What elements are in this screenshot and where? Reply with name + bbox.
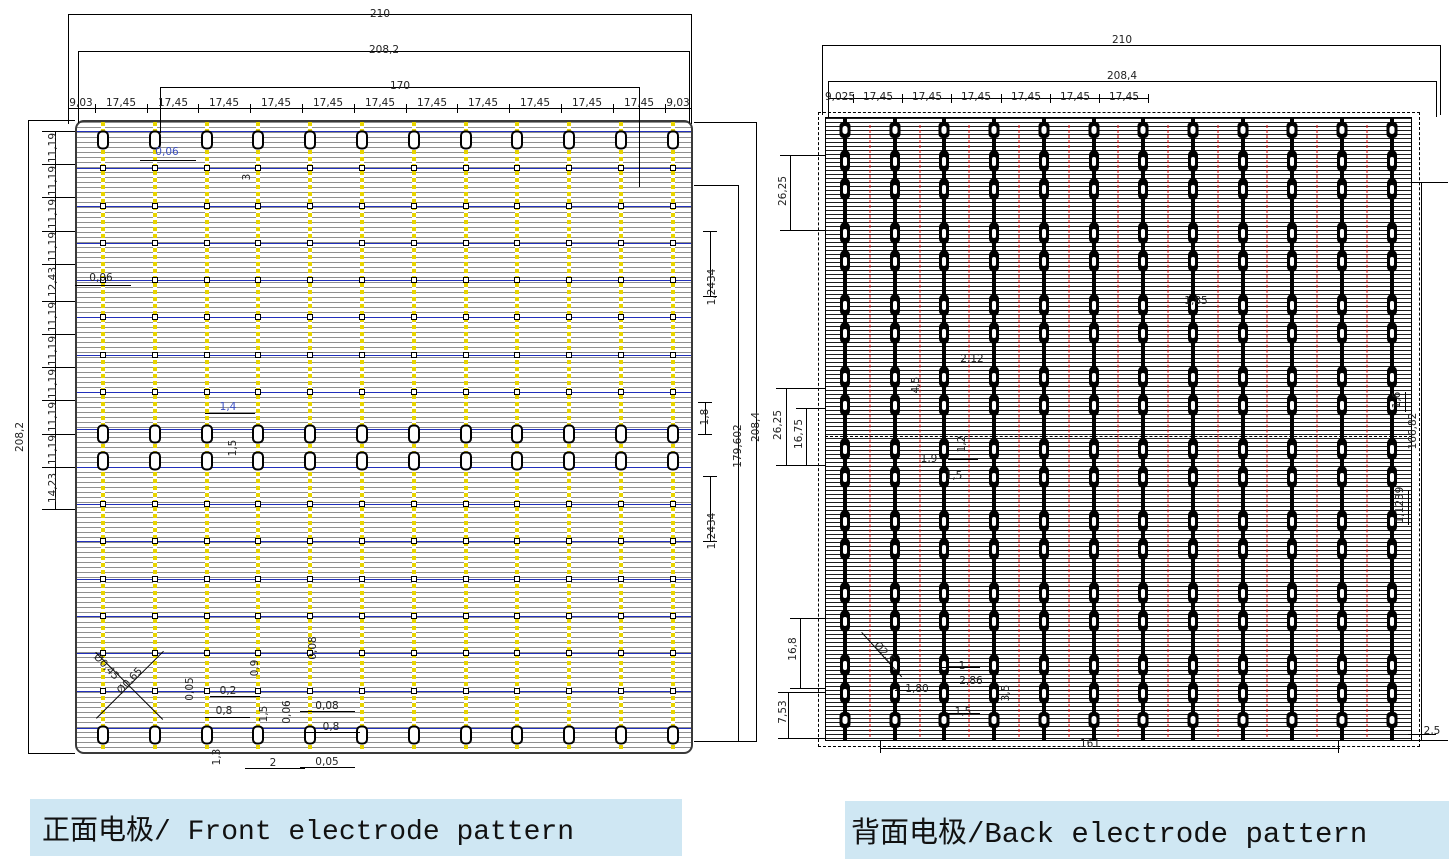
dim-label: 11,19 bbox=[48, 166, 59, 196]
dim-line bbox=[42, 264, 75, 265]
dim-label: 26,25 bbox=[773, 410, 784, 440]
dim-line bbox=[205, 413, 255, 414]
solder-pad bbox=[359, 538, 365, 544]
dim-line bbox=[406, 104, 407, 113]
front-bottom-pad bbox=[149, 726, 161, 745]
solder-pad bbox=[514, 538, 520, 544]
solder-pad bbox=[411, 650, 417, 656]
interconnect-line bbox=[77, 728, 691, 729]
solder-pad bbox=[255, 613, 261, 619]
dim-line bbox=[691, 104, 692, 113]
solder-pad bbox=[514, 352, 520, 358]
front-top-pad bbox=[97, 131, 109, 150]
solder-pad bbox=[670, 277, 676, 283]
back-pad-blob bbox=[1039, 582, 1049, 604]
solder-pad bbox=[359, 314, 365, 320]
solder-pad bbox=[100, 203, 106, 209]
dim-label: 11,19 bbox=[48, 369, 59, 399]
back-pad-blob bbox=[1138, 222, 1148, 244]
solder-pad bbox=[100, 165, 106, 171]
dim-label: 166,82 bbox=[1408, 413, 1419, 450]
dim-line bbox=[790, 688, 825, 689]
back-pad-blob bbox=[1188, 582, 1198, 604]
back-pad-blob bbox=[989, 682, 999, 704]
solder-pad bbox=[618, 613, 624, 619]
back-pad-blob bbox=[1287, 322, 1297, 344]
solder-pad bbox=[566, 538, 572, 544]
back-pad-blob bbox=[1188, 438, 1198, 460]
dim-label: 170 bbox=[390, 81, 410, 92]
front-bottom-pad bbox=[511, 726, 523, 745]
dim-label: 0,06 bbox=[89, 273, 112, 284]
solder-pad bbox=[204, 389, 210, 395]
back-busbar bbox=[1191, 118, 1195, 740]
back-pad-blob bbox=[1238, 150, 1248, 172]
dim-line bbox=[778, 738, 825, 739]
dim-label: 11,19 bbox=[48, 435, 59, 465]
front-top-pad bbox=[304, 131, 316, 150]
center-line-red bbox=[870, 125, 871, 737]
back-pad-blob bbox=[840, 250, 850, 272]
solder-pad bbox=[359, 277, 365, 283]
dim-label: 208,4 bbox=[751, 412, 762, 442]
dim-line bbox=[147, 104, 148, 113]
back-pad-blob bbox=[1337, 582, 1347, 604]
back-busbar bbox=[1241, 118, 1245, 740]
back-pad-blob bbox=[1287, 366, 1297, 388]
front-bottom-pad bbox=[304, 726, 316, 745]
solder-pad bbox=[618, 501, 624, 507]
solder-pad bbox=[255, 538, 261, 544]
solder-pad bbox=[152, 314, 158, 320]
dim-label: 17,45 bbox=[106, 98, 136, 109]
dim-line bbox=[951, 94, 952, 103]
back-pad-blob bbox=[840, 610, 850, 632]
solder-pad bbox=[100, 576, 106, 582]
back-busbar bbox=[1092, 118, 1096, 740]
solder-pad bbox=[411, 538, 417, 544]
back-pad-blob bbox=[1039, 178, 1049, 200]
solder-pad bbox=[255, 165, 261, 171]
dim-label: 2,5 bbox=[1424, 726, 1441, 737]
solder-pad bbox=[514, 314, 520, 320]
back-pad-blob bbox=[1089, 682, 1099, 704]
back-pad-blob bbox=[1238, 250, 1248, 272]
solder-pad bbox=[670, 613, 676, 619]
solder-pad bbox=[255, 277, 261, 283]
back-pad-blob bbox=[890, 610, 900, 632]
front-mid-pad bbox=[563, 452, 575, 471]
back-busbar bbox=[843, 118, 847, 740]
solder-pad bbox=[463, 352, 469, 358]
solder-pad bbox=[463, 576, 469, 582]
solder-pad bbox=[411, 613, 417, 619]
front-mid-pad bbox=[97, 425, 109, 444]
solder-pad bbox=[359, 240, 365, 246]
solder-pad bbox=[359, 650, 365, 656]
dim-label: 2,86 bbox=[959, 676, 982, 687]
solder-pad bbox=[411, 165, 417, 171]
solder-pad bbox=[566, 576, 572, 582]
front-caption: 正面电极/ Front electrode pattern bbox=[30, 799, 682, 856]
solder-pad bbox=[463, 613, 469, 619]
front-mid-pad bbox=[460, 452, 472, 471]
dim-label: 17,45 bbox=[417, 98, 447, 109]
front-mid-pad bbox=[356, 425, 368, 444]
solder-pad bbox=[152, 688, 158, 694]
dim-label: 11,19 bbox=[48, 199, 59, 229]
front-top-pad bbox=[408, 131, 420, 150]
solder-pad bbox=[307, 389, 313, 395]
back-bottom-pad bbox=[1287, 712, 1298, 728]
dim-line bbox=[42, 197, 75, 198]
back-pad-blob bbox=[1387, 466, 1397, 488]
solder-pad bbox=[566, 165, 572, 171]
solder-pad bbox=[307, 165, 313, 171]
solder-pad bbox=[152, 501, 158, 507]
back-bottom-pad bbox=[1238, 712, 1249, 728]
solder-pad bbox=[204, 650, 210, 656]
solder-pad bbox=[152, 240, 158, 246]
back-pad-blob bbox=[1188, 394, 1198, 416]
solder-pad bbox=[514, 650, 520, 656]
solder-pad bbox=[566, 277, 572, 283]
back-pad-blob bbox=[890, 366, 900, 388]
back-busbar bbox=[992, 118, 996, 740]
back-pad-blob bbox=[989, 438, 999, 460]
front-mid-pad bbox=[356, 452, 368, 471]
dim-label: 12,43 bbox=[48, 267, 59, 297]
dim-label: 1,2 bbox=[957, 436, 968, 453]
dim-label: 9,03 bbox=[69, 98, 92, 109]
back-pad-blob bbox=[1138, 150, 1148, 172]
back-pad-blob bbox=[1387, 294, 1397, 316]
dim-label: 1,9 bbox=[921, 454, 938, 465]
back-pad-blob bbox=[1287, 582, 1297, 604]
back-pad-blob bbox=[1138, 394, 1148, 416]
interconnect-line bbox=[77, 243, 691, 244]
dim-label: 17,45 bbox=[365, 98, 395, 109]
solder-pad bbox=[514, 613, 520, 619]
back-pad-blob bbox=[1039, 322, 1049, 344]
solder-pad bbox=[307, 352, 313, 358]
front-top-pad bbox=[252, 131, 264, 150]
interconnect-line bbox=[77, 541, 691, 542]
solder-pad bbox=[566, 650, 572, 656]
solder-pad bbox=[255, 240, 261, 246]
solder-pad bbox=[670, 538, 676, 544]
back-pad-blob bbox=[1387, 654, 1397, 676]
solder-pad bbox=[100, 389, 106, 395]
back-pad-blob bbox=[989, 322, 999, 344]
dim-label: 208,2 bbox=[369, 45, 399, 56]
solder-pad bbox=[359, 688, 365, 694]
interconnect-line bbox=[77, 504, 691, 505]
back-pad-blob bbox=[939, 654, 949, 676]
dim-label: 17,45 bbox=[1109, 92, 1139, 103]
back-pad-blob bbox=[890, 682, 900, 704]
solder-pad bbox=[255, 650, 261, 656]
back-pad-blob bbox=[890, 250, 900, 272]
back-pad-blob bbox=[840, 178, 850, 200]
back-bottom-pad bbox=[1387, 712, 1398, 728]
solder-pad bbox=[463, 389, 469, 395]
front-mid-pad bbox=[615, 425, 627, 444]
dim-line bbox=[790, 155, 791, 230]
back-pad-blob bbox=[989, 582, 999, 604]
dim-label: 0,9 bbox=[250, 660, 261, 677]
dim-line bbox=[42, 334, 75, 335]
solder-pad bbox=[463, 314, 469, 320]
solder-pad bbox=[566, 389, 572, 395]
front-top-pad bbox=[460, 131, 472, 150]
dim-label: 0,05 bbox=[315, 757, 338, 768]
back-pad-blob bbox=[939, 510, 949, 532]
back-pad-blob bbox=[1287, 294, 1297, 316]
solder-pad bbox=[100, 688, 106, 694]
back-pad-blob bbox=[1188, 366, 1198, 388]
back-pad-blob bbox=[1238, 510, 1248, 532]
center-line-red bbox=[1019, 125, 1020, 737]
back-bottom-pad bbox=[1089, 712, 1100, 728]
back-pad-blob bbox=[840, 222, 850, 244]
dim-label: 14,23 bbox=[48, 473, 59, 503]
solder-pad bbox=[670, 314, 676, 320]
center-line-red bbox=[1118, 125, 1119, 737]
back-pad-blob bbox=[1337, 438, 1347, 460]
back-busbar bbox=[1042, 118, 1046, 740]
front-mid-pad bbox=[149, 425, 161, 444]
back-bottom-pad bbox=[1039, 712, 1050, 728]
solder-pad bbox=[204, 538, 210, 544]
front-mid-pad bbox=[304, 452, 316, 471]
solder-pad bbox=[463, 240, 469, 246]
back-bottom-pad bbox=[890, 712, 901, 728]
back-pad-blob bbox=[840, 654, 850, 676]
front-mid-pad bbox=[511, 425, 523, 444]
dim-label: 9,025 bbox=[825, 92, 855, 103]
solder-pad bbox=[204, 352, 210, 358]
dim-line bbox=[42, 400, 75, 401]
solder-pad bbox=[152, 277, 158, 283]
dim-label: 179,602 bbox=[733, 424, 744, 467]
back-pad-blob bbox=[1039, 294, 1049, 316]
back-pad-blob bbox=[1238, 178, 1248, 200]
front-bottom-pad bbox=[615, 726, 627, 745]
dim-line bbox=[140, 160, 196, 161]
back-pad-blob bbox=[939, 438, 949, 460]
back-pad-blob bbox=[840, 538, 850, 560]
solder-pad bbox=[411, 576, 417, 582]
solder-pad bbox=[411, 501, 417, 507]
back-pad-blob bbox=[1287, 178, 1297, 200]
dim-label: 11,19 bbox=[48, 302, 59, 332]
solder-pad bbox=[566, 314, 572, 320]
front-bottom-pad bbox=[252, 726, 264, 745]
back-pad-blob bbox=[989, 654, 999, 676]
back-pad-blob bbox=[890, 510, 900, 532]
dim-label: 3,5 bbox=[1001, 685, 1012, 702]
dim-line bbox=[42, 164, 75, 165]
back-pad-blob bbox=[1287, 250, 1297, 272]
solder-pad bbox=[670, 389, 676, 395]
solder-pad bbox=[670, 165, 676, 171]
back-pad-blob bbox=[1337, 178, 1347, 200]
dim-label: 208,2 bbox=[15, 422, 26, 452]
dim-label: 2,12 bbox=[960, 354, 983, 365]
dim-line bbox=[776, 388, 825, 389]
solder-pad bbox=[514, 165, 520, 171]
back-busbar bbox=[1290, 118, 1294, 740]
solder-pad bbox=[514, 203, 520, 209]
dim-line bbox=[1421, 182, 1422, 740]
back-pad-blob bbox=[1387, 178, 1397, 200]
solder-pad bbox=[100, 352, 106, 358]
front-mid-pad bbox=[615, 452, 627, 471]
front-top-pad bbox=[356, 131, 368, 150]
back-top-pad bbox=[1089, 122, 1100, 138]
back-caption-text: 背面电极/Back electrode pattern bbox=[851, 809, 1367, 851]
back-pad-blob bbox=[1188, 610, 1198, 632]
back-pad-blob bbox=[1138, 178, 1148, 200]
back-pad-blob bbox=[1089, 610, 1099, 632]
back-pad-blob bbox=[1387, 150, 1397, 172]
dim-label: 210 bbox=[370, 9, 390, 20]
back-pad-blob bbox=[1138, 510, 1148, 532]
solder-pad bbox=[204, 314, 210, 320]
solder-pad bbox=[204, 576, 210, 582]
solder-pad bbox=[152, 203, 158, 209]
back-pad-blob bbox=[989, 222, 999, 244]
back-pad-blob bbox=[1238, 322, 1248, 344]
dim-label: 17,45 bbox=[468, 98, 498, 109]
solder-pad bbox=[670, 352, 676, 358]
front-mid-pad bbox=[201, 425, 213, 444]
front-mid-pad bbox=[667, 452, 679, 471]
back-pad-blob bbox=[1039, 682, 1049, 704]
front-mid-pad bbox=[252, 452, 264, 471]
solder-pad bbox=[152, 165, 158, 171]
back-pad-blob bbox=[939, 610, 949, 632]
back-pad-blob bbox=[1287, 654, 1297, 676]
center-line-red bbox=[1218, 125, 1219, 737]
back-pad-blob bbox=[989, 178, 999, 200]
dim-line bbox=[28, 753, 75, 754]
dim-label: 0,2 bbox=[220, 686, 237, 697]
back-pad-blob bbox=[1138, 366, 1148, 388]
front-top-pad bbox=[201, 131, 213, 150]
dim-line bbox=[457, 104, 458, 113]
solder-pad bbox=[463, 501, 469, 507]
solder-pad bbox=[255, 501, 261, 507]
solder-pad bbox=[618, 203, 624, 209]
solder-pad bbox=[566, 203, 572, 209]
dim-label: 16,75 bbox=[794, 419, 805, 449]
back-top-pad bbox=[1138, 122, 1149, 138]
solder-pad bbox=[618, 576, 624, 582]
dim-label: 1 bbox=[959, 661, 966, 672]
back-pad-blob bbox=[1138, 610, 1148, 632]
front-mid-pad bbox=[149, 452, 161, 471]
solder-pad bbox=[359, 501, 365, 507]
back-pad-blob bbox=[840, 322, 850, 344]
solder-pad bbox=[618, 389, 624, 395]
dim-line bbox=[780, 230, 825, 231]
dim-line bbox=[806, 408, 807, 465]
solder-pad bbox=[618, 352, 624, 358]
interconnect-line bbox=[77, 467, 691, 468]
back-pad-blob bbox=[1089, 394, 1099, 416]
back-top-pad bbox=[939, 122, 950, 138]
front-bottom-pad bbox=[460, 726, 472, 745]
back-pad-blob bbox=[1337, 150, 1347, 172]
front-bottom-pad bbox=[97, 726, 109, 745]
front-top-pad bbox=[563, 131, 575, 150]
back-pad-blob bbox=[939, 394, 949, 416]
back-pad-blob bbox=[1138, 322, 1148, 344]
dim-label: 17,45 bbox=[961, 92, 991, 103]
front-caption-text: 正面电极/ Front electrode pattern bbox=[42, 808, 574, 848]
back-pad-blob bbox=[1039, 222, 1049, 244]
back-pad-blob bbox=[1287, 150, 1297, 172]
back-pad-blob bbox=[1039, 394, 1049, 416]
dim-line bbox=[205, 717, 250, 718]
solder-pad bbox=[618, 165, 624, 171]
dim-label: 1,5 bbox=[228, 440, 239, 457]
dim-label: 17,45 bbox=[313, 98, 343, 109]
back-pad-blob bbox=[1039, 510, 1049, 532]
back-pad-blob bbox=[1387, 322, 1397, 344]
solder-pad bbox=[463, 538, 469, 544]
solder-pad bbox=[618, 538, 624, 544]
interconnect-line bbox=[77, 317, 691, 318]
center-line-red bbox=[1069, 125, 1070, 737]
solder-pad bbox=[514, 688, 520, 694]
back-pad-blob bbox=[1138, 538, 1148, 560]
solder-pad bbox=[463, 277, 469, 283]
back-pad-blob bbox=[1039, 250, 1049, 272]
back-pad-blob bbox=[840, 438, 850, 460]
back-pad-blob bbox=[1287, 510, 1297, 532]
dim-line bbox=[694, 122, 757, 123]
back-busbar bbox=[942, 118, 946, 740]
back-pad-blob bbox=[840, 466, 850, 488]
front-bottom-pad bbox=[201, 726, 213, 745]
solder-pad bbox=[307, 203, 313, 209]
dim-label: 1,3 bbox=[212, 749, 223, 766]
dim-line bbox=[78, 51, 79, 123]
center-line-red bbox=[1267, 125, 1268, 737]
solder-pad bbox=[204, 203, 210, 209]
back-pad-blob bbox=[890, 150, 900, 172]
interconnect-line bbox=[77, 691, 691, 692]
solder-pad bbox=[204, 613, 210, 619]
solder-pad bbox=[514, 576, 520, 582]
solder-pad bbox=[100, 613, 106, 619]
dim-line bbox=[825, 436, 1412, 437]
back-pad-blob bbox=[1089, 466, 1099, 488]
back-pad-blob bbox=[1089, 150, 1099, 172]
solder-pad bbox=[670, 501, 676, 507]
dim-line bbox=[28, 120, 75, 121]
back-pad-blob bbox=[1039, 610, 1049, 632]
back-pad-blob bbox=[890, 582, 900, 604]
dim-label: 17,45 bbox=[624, 98, 654, 109]
back-pad-blob bbox=[1337, 654, 1347, 676]
back-pad-blob bbox=[1287, 222, 1297, 244]
dim-label: 161 bbox=[1080, 739, 1100, 750]
back-pad-blob bbox=[989, 394, 999, 416]
